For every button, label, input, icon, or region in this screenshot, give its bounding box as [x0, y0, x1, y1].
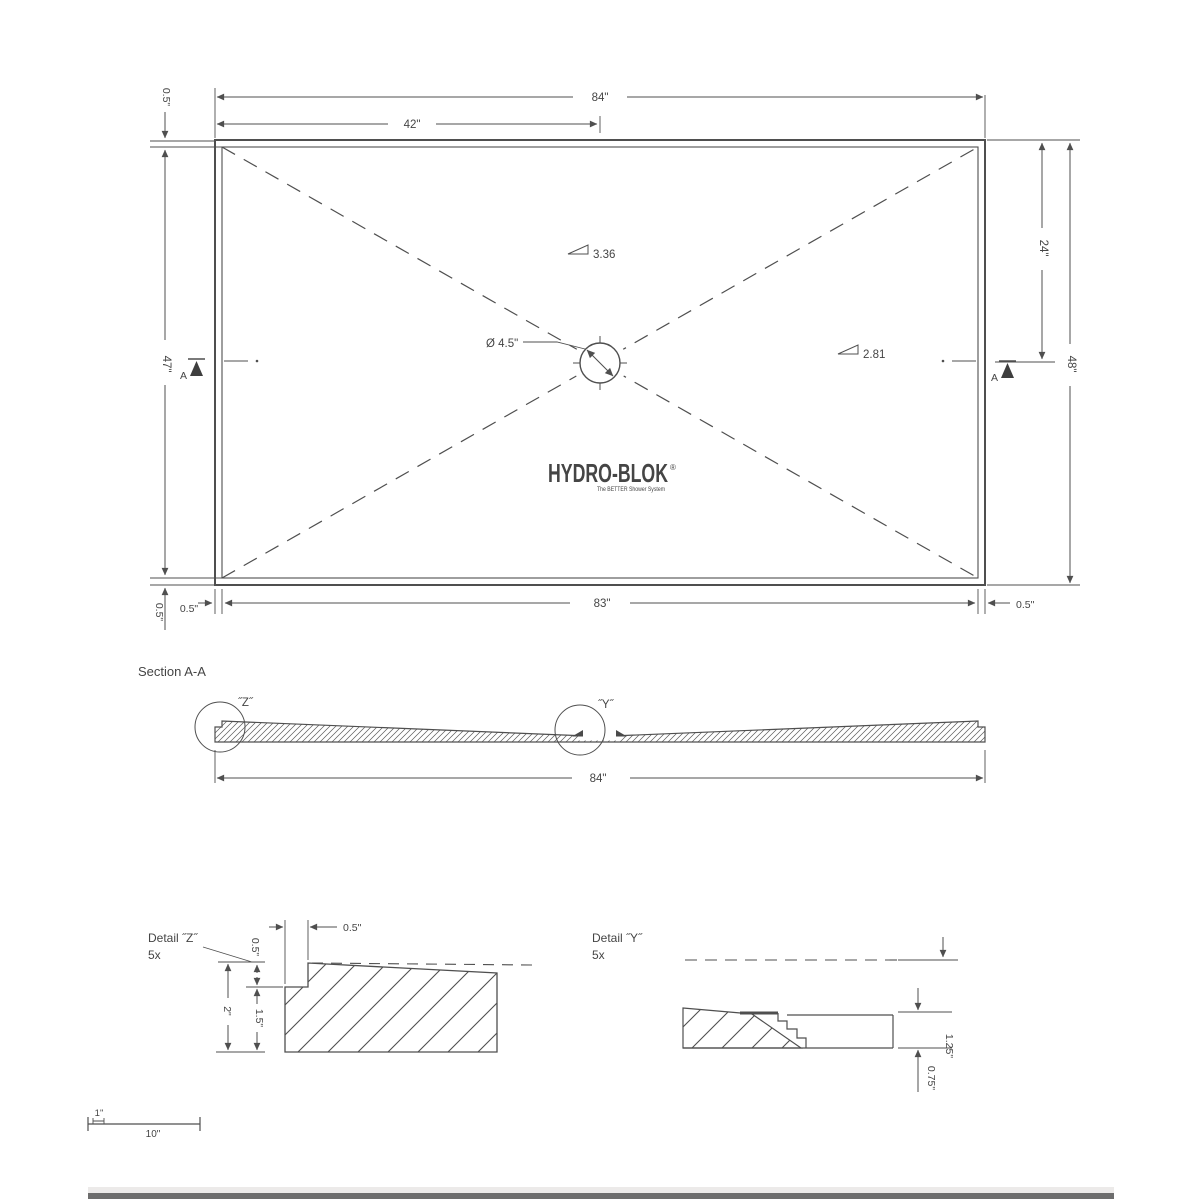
- detail-z-notch-width-label: 0.5": [343, 922, 362, 934]
- plan-view: Ø 4.5" 3.36 2.81 HYDRO-BLOK ® The BETTER…: [150, 88, 1080, 630]
- technical-drawing-page: Ø 4.5" 3.36 2.81 HYDRO-BLOK ® The BETTER…: [0, 0, 1200, 1200]
- bottom-bar-rule: [88, 1193, 1114, 1199]
- detail-z-ref-label: ˝Z˝: [238, 697, 254, 709]
- section-arrow-left: [190, 361, 203, 376]
- detail-z-lower-label: 1.5": [253, 1009, 265, 1028]
- section-aa-title: Section A-A: [138, 664, 206, 679]
- ext-lines-bottom-left: [150, 578, 222, 585]
- scale-bar: 1" 10": [88, 1108, 200, 1140]
- detail-y-title: Detail ˝Y˝: [592, 931, 643, 945]
- slope-value-right: 2.81: [863, 349, 885, 361]
- brand-logo: HYDRO-BLOK: [548, 458, 668, 488]
- detail-y-thickness-label: 1.25": [943, 1034, 955, 1058]
- dim-wall-top-label: 0.5": [160, 88, 172, 107]
- dim-wall-left-label: 0.5": [180, 603, 199, 615]
- centerline-dot-left: [256, 360, 259, 363]
- detail-z-scale: 5x: [148, 948, 161, 962]
- scale-length-label: 10": [146, 1129, 161, 1140]
- bottom-bar: [88, 1187, 1114, 1199]
- detail-y-ref-label: ˝Y˝: [598, 699, 615, 711]
- dim-47-label: 47": [160, 356, 172, 373]
- ext-lines-top-left: [150, 141, 222, 147]
- detail-z-title: Detail ˝Z˝: [148, 931, 198, 945]
- detail-z-ext-vertical: [285, 920, 308, 984]
- section-marker-a-left: A: [180, 370, 187, 382]
- dim-42-label: 42": [404, 119, 421, 131]
- brand-tagline: The BETTER Shower System: [597, 486, 665, 493]
- drain-diameter-label: Ø 4.5": [486, 338, 518, 350]
- dim-wall-right-label: 0.5": [1016, 599, 1035, 611]
- slope-symbol-right: [838, 345, 858, 354]
- drawing-canvas: Ø 4.5" 3.36 2.81 HYDRO-BLOK ® The BETTER…: [0, 0, 1200, 1200]
- drain-leader-line: [523, 342, 585, 349]
- dim-83-label: 83": [594, 598, 611, 610]
- detail-y-view: Detail ˝Y˝ 5x 1.25" 0.75": [592, 931, 958, 1092]
- bottom-bar-highlight: [88, 1187, 1114, 1193]
- scale-bar-line: [88, 1117, 200, 1131]
- dim-48-label: 48": [1065, 356, 1077, 373]
- scale-unit-label: 1": [95, 1108, 104, 1119]
- dim-wall-bottom-label: 0.5": [153, 603, 165, 622]
- detail-y-scale: 5x: [592, 948, 605, 962]
- section-dim-84-label: 84": [590, 773, 607, 785]
- registered-mark: ®: [670, 463, 676, 472]
- section-aa-view: Section A-A ˝Z˝ ˝Y˝ 84": [138, 664, 985, 785]
- detail-z-notch-depth-label: 0.5": [249, 938, 261, 957]
- drain-recess-gap: [578, 726, 621, 741]
- detail-z-total-label: 2": [221, 1006, 233, 1016]
- section-arrow-right: [1001, 363, 1014, 378]
- detail-z-body: [285, 963, 497, 1052]
- detail-z-view: Detail ˝Z˝ 5x 0.5" 0.5" 2" 1.5": [148, 920, 532, 1052]
- detail-z-leader: [203, 947, 252, 962]
- slope-symbol-top: [568, 245, 588, 254]
- dim-24-label: 24": [1037, 240, 1049, 257]
- dim-84-label: 84": [592, 92, 609, 104]
- slope-value-top: 3.36: [593, 249, 615, 261]
- centerline-dot-right: [942, 360, 945, 363]
- section-marker-a-right: A: [991, 372, 998, 384]
- detail-y-step-label: 0.75": [925, 1066, 937, 1090]
